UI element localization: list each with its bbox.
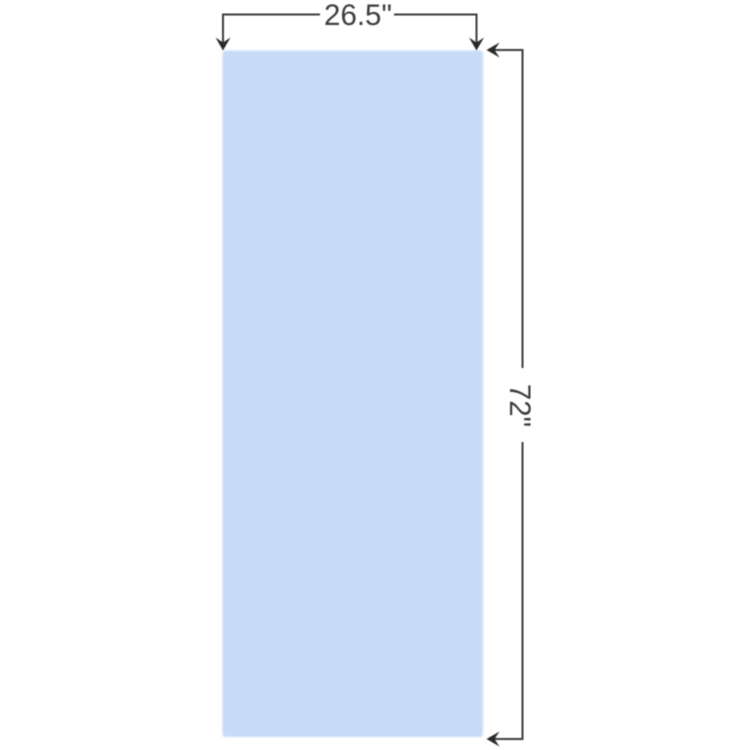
svg-text:72": 72" (503, 384, 536, 427)
svg-text:26.5": 26.5" (324, 0, 392, 32)
